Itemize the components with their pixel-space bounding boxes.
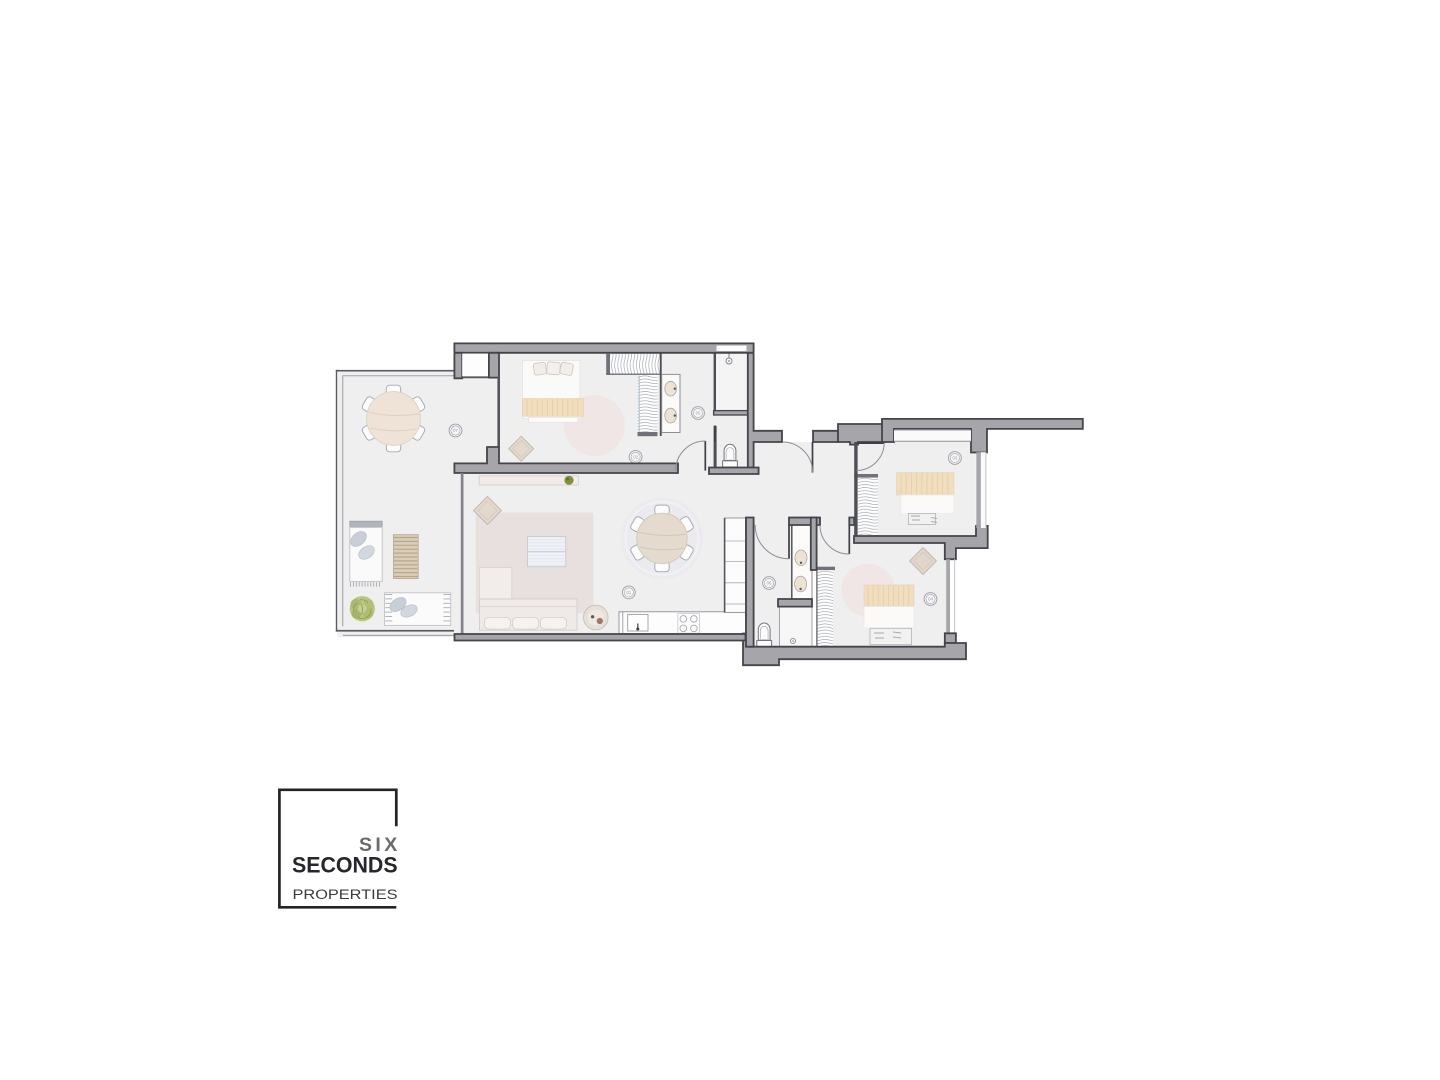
svg-text:05: 05 bbox=[696, 411, 701, 416]
svg-text:06: 06 bbox=[767, 581, 772, 586]
svg-text:PROPERTIES: PROPERTIES bbox=[293, 887, 398, 902]
svg-text:03: 03 bbox=[953, 456, 958, 461]
svg-text:SECONDS: SECONDS bbox=[292, 852, 398, 877]
svg-text:01: 01 bbox=[626, 590, 631, 595]
svg-text:07: 07 bbox=[453, 428, 458, 433]
svg-text:02: 02 bbox=[633, 455, 638, 460]
svg-text:04: 04 bbox=[928, 597, 933, 602]
